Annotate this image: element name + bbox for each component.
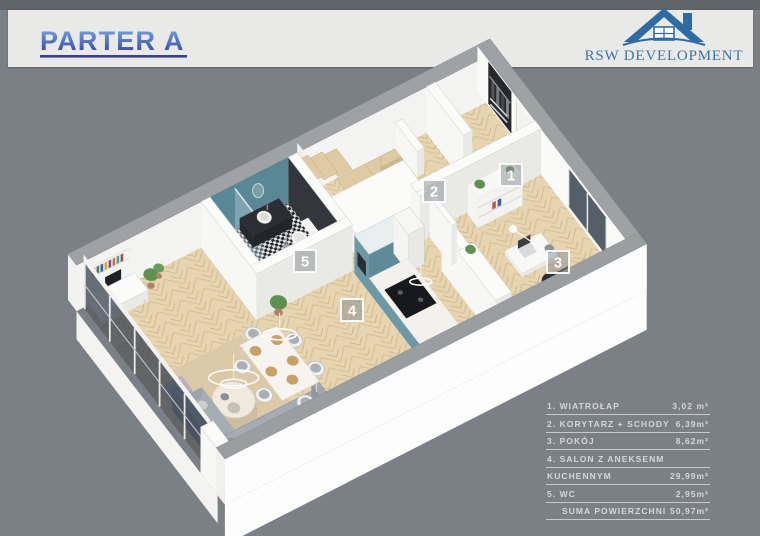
plan-shape — [105, 262, 108, 271]
room-marker-number: 4 — [348, 303, 357, 320]
plan-shape — [113, 257, 116, 266]
room-marker-number: 5 — [301, 254, 309, 271]
plan-shape — [451, 223, 456, 266]
legend-area: 3,02 m² — [672, 401, 709, 411]
legend-row: 5. WC 2,95m² — [546, 489, 710, 503]
plan-shape — [117, 255, 120, 264]
room-marker-number: 3 — [554, 255, 562, 272]
legend-row: 2. KORYTARZ + SCHODY 6,39m² — [546, 419, 710, 433]
plan-shape — [109, 259, 112, 268]
room-marker-5: 5 — [294, 250, 316, 272]
legend-label: 2. KORYTARZ + SCHODY — [547, 419, 670, 429]
room-marker-1: 1 — [500, 164, 522, 186]
plan-shape — [121, 253, 124, 262]
plan-shape — [101, 264, 104, 273]
legend-area: 29,99m² — [670, 471, 709, 481]
legend-label: 4. SALON Z ANEKSENM — [547, 454, 664, 464]
legend-label: 3. POKÓJ — [547, 436, 595, 446]
plan-shape — [417, 148, 424, 178]
room-marker-2: 2 — [423, 180, 445, 202]
legend-label: 1. WIATROŁAP — [547, 401, 620, 411]
legend-row: 4. SALON Z ANEKSENM — [546, 454, 710, 468]
room-marker-4: 4 — [341, 299, 363, 321]
legend-area: 8,62m² — [676, 436, 709, 446]
legend-area: 50,97m² — [670, 506, 709, 516]
room-marker-number: 1 — [507, 168, 515, 185]
legend-row: KUCHENNYM 29,99m² — [546, 471, 710, 485]
room-marker-number: 2 — [430, 184, 438, 201]
room-marker-3: 3 — [547, 251, 569, 273]
area-legend: 1. WIATROŁAP 3,02 m² 2. KORYTARZ + SCHOD… — [546, 401, 710, 524]
legend-label: KUCHENNYM — [547, 471, 612, 481]
legend-row: 1. WIATROŁAP 3,02 m² — [546, 401, 710, 415]
legend-row: 3. POKÓJ 8,62m² — [546, 436, 710, 450]
page: PARTER A RSW DEVELOPMENT — [0, 0, 760, 536]
plan-shape — [250, 266, 256, 320]
legend-area: 2,95m² — [676, 489, 709, 499]
legend-row-total: SUMA POWIERZCHNI 50,97m² — [546, 506, 710, 520]
legend-area: 6,39m² — [676, 419, 709, 429]
legend-label: SUMA POWIERZCHNI — [547, 506, 666, 516]
wc-mirror — [253, 184, 264, 198]
desk-pendant-bulb — [509, 225, 517, 233]
legend-label: 5. WC — [547, 489, 576, 499]
